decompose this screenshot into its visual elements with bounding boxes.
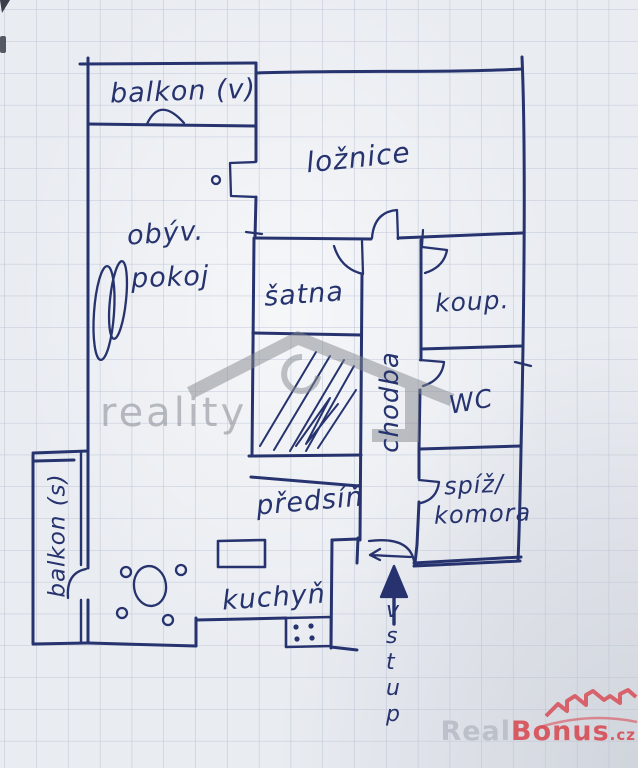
room-label-balkon-v: balkon (v) (110, 75, 257, 107)
floorplan-photo: reality balkon (v) ložnice obýv. pokoj š… (0, 0, 638, 768)
watermark-agency-text: reality (100, 390, 247, 436)
brand-part-tld: .cz (610, 726, 636, 744)
room-label-wc: WC (447, 385, 495, 417)
brand-part-bonus: Bonus (511, 716, 610, 747)
room-label-balkon-s: balkon (s) (47, 470, 70, 602)
room-label-satna: šatna (263, 278, 345, 311)
room-label-kuchyn: kuchyň (221, 580, 326, 614)
brand-part-real: Real (440, 716, 511, 747)
room-label-spiz-line1: spíž/ (443, 471, 504, 498)
entry-label-vstup: vstup (386, 598, 401, 728)
brand-watermark-text: RealBonus.cz (440, 716, 636, 747)
room-label-spiz-line2: komora (434, 500, 532, 527)
room-label-chodba: chodba (377, 347, 403, 457)
room-label-koupelna: koup. (434, 287, 510, 316)
floorplan-drawing: reality (0, 0, 638, 768)
room-label-obyv-line2: pokoj (131, 263, 210, 293)
graph-paper-grid (0, 0, 638, 768)
room-label-obyv-line1: obýv. (126, 217, 205, 249)
